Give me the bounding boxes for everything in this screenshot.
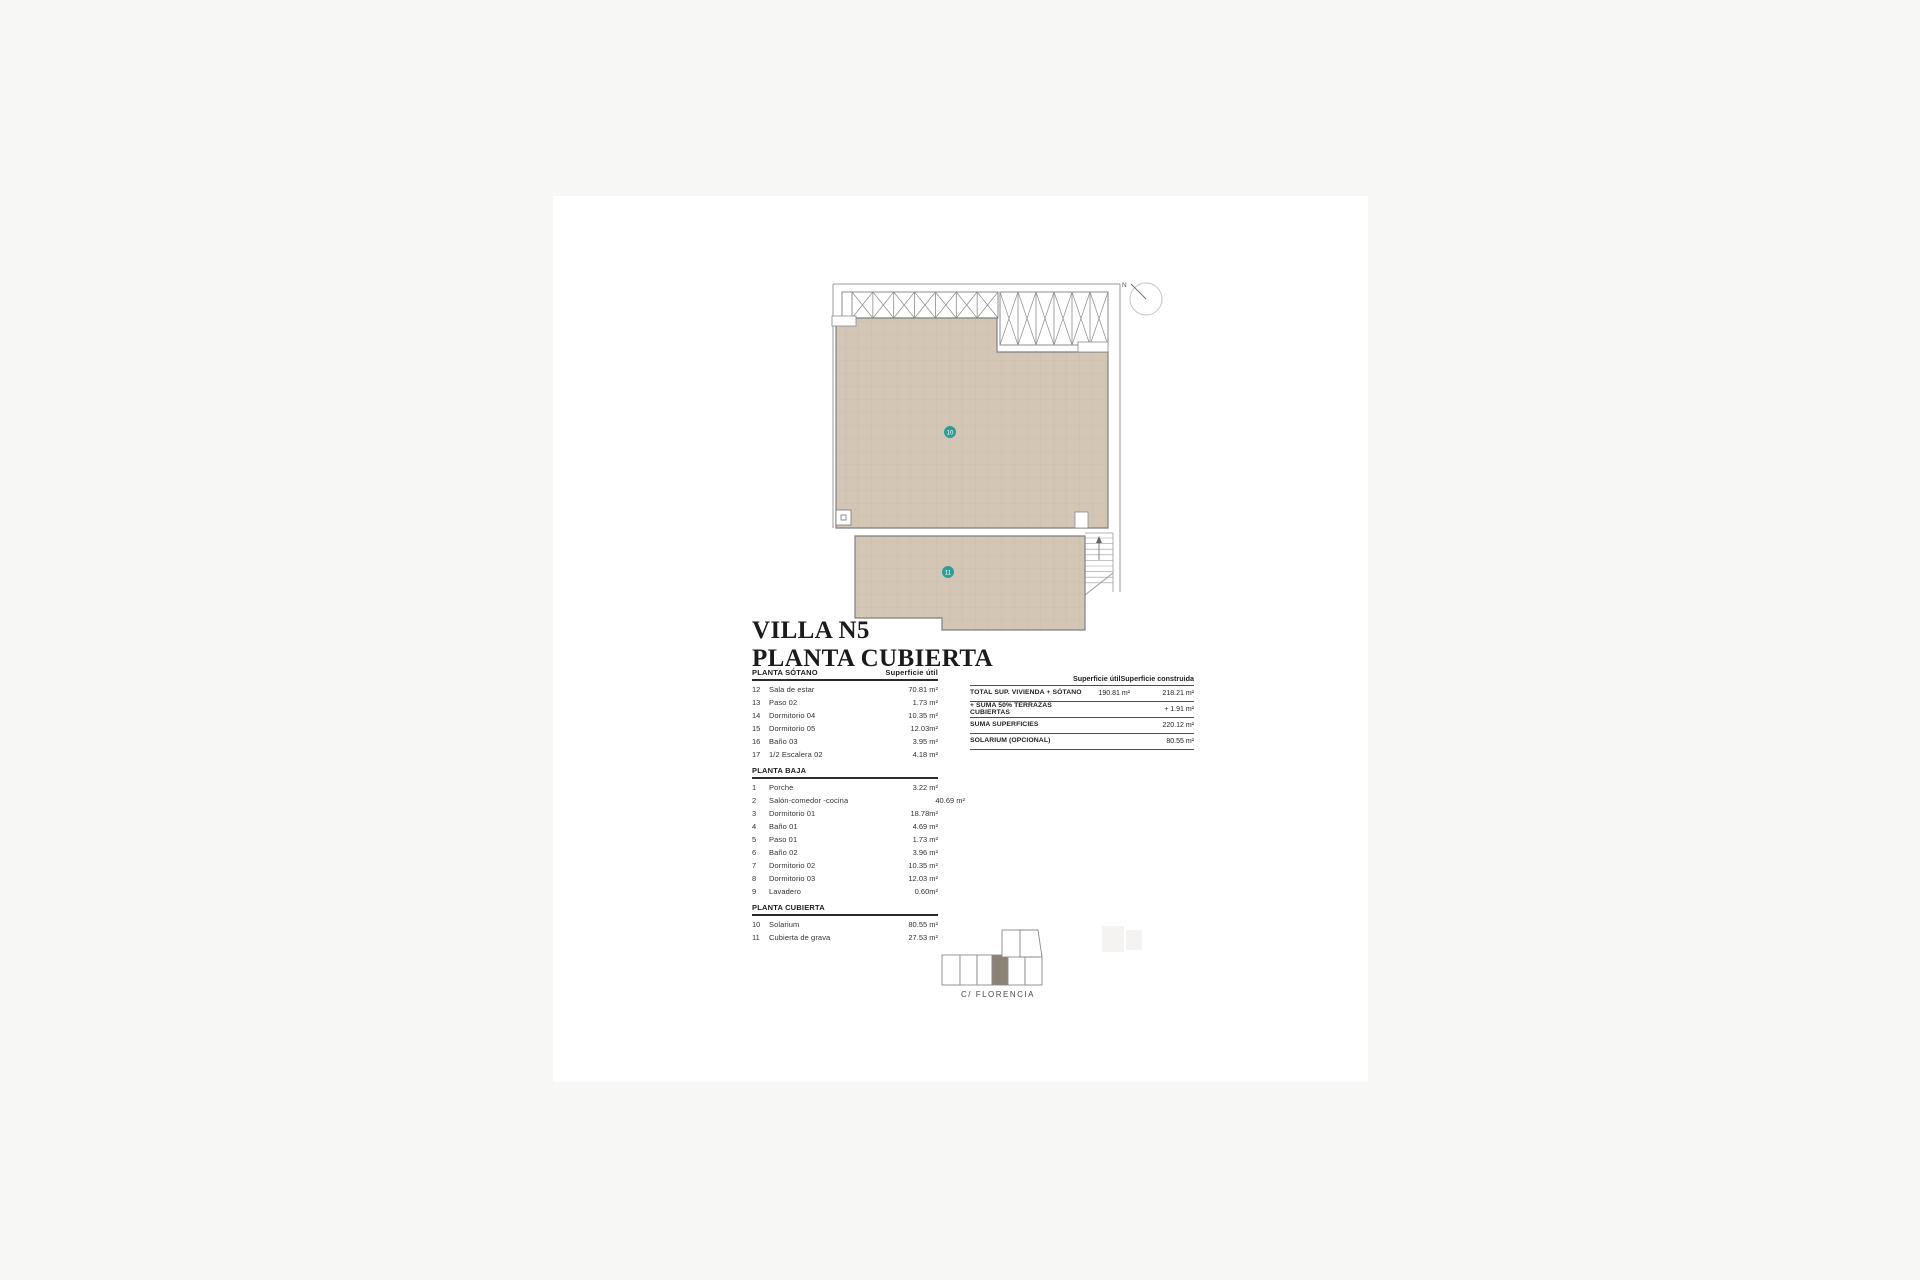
room-number: 12 — [752, 686, 769, 694]
room-number: 11 — [752, 934, 769, 942]
solarium-roof-area — [836, 318, 1108, 528]
svg-text:10: 10 — [947, 431, 954, 437]
area-row: 12Sala de estar70.81 m² — [752, 683, 938, 696]
area-row: 171/2 Escalera 024.18 m² — [752, 748, 938, 761]
room-number: 13 — [752, 699, 769, 707]
room-area-value: 0.60m² — [915, 888, 938, 896]
room-name: Lavadero — [769, 888, 915, 896]
room-name: 1/2 Escalera 02 — [769, 751, 913, 759]
room-number: 7 — [752, 862, 769, 870]
svg-text:11: 11 — [945, 571, 952, 577]
summary-row: SOLARIUM (OPCIONAL)80.55 m² — [970, 733, 1194, 750]
pergola-band-left — [842, 292, 998, 318]
parapet-notch-left — [832, 316, 856, 326]
room-name: Paso 02 — [769, 699, 913, 707]
room-marker-11: 11 — [942, 566, 954, 578]
street-label: C/ FLORENCIA — [961, 990, 1035, 999]
area-row: 13Paso 021.73 m² — [752, 696, 938, 709]
summary-construida-value: 80.55 m² — [1130, 738, 1194, 745]
area-row: 7Dormitorio 0210.35 m² — [752, 859, 938, 872]
room-number: 16 — [752, 738, 769, 746]
summary-construida-value: 218.21 m² — [1130, 690, 1194, 697]
north-compass-icon: N — [1122, 282, 1162, 315]
section-header: PLANTA BAJA — [752, 767, 938, 779]
roof-drain-box — [836, 510, 851, 525]
summary-label: SUMA SUPERFICIES — [970, 722, 1082, 729]
neighbor-buildings-faint — [1102, 926, 1142, 952]
room-number: 10 — [752, 921, 769, 929]
section-title: PLANTA SÓTANO — [752, 669, 818, 677]
room-name: Dormitorio 04 — [769, 712, 908, 720]
room-area-value: 3.96 m² — [913, 849, 938, 857]
summary-construida-value: + 1.91 m² — [1130, 706, 1194, 713]
svg-text:N: N — [1122, 282, 1127, 289]
section-title: PLANTA BAJA — [752, 767, 806, 775]
summary-col1-header: Superficie útil — [1073, 675, 1121, 682]
area-row: 10Solarium80.55 m² — [752, 918, 938, 931]
plan-sheet-page: 10 11 N VILLA N5 PLANTA CUBIERTA PLANTA … — [0, 0, 1920, 1280]
area-row: 9Lavadero0.60m² — [752, 885, 938, 898]
room-area-value: 10.35 m² — [908, 862, 938, 870]
room-number: 15 — [752, 725, 769, 733]
room-area-value: 3.95 m² — [913, 738, 938, 746]
area-row: 3Dormitorio 0118.78m² — [752, 807, 938, 820]
areas-col-header: Superficie útil — [885, 669, 938, 677]
area-row: 15Dormitorio 0512.03m² — [752, 722, 938, 735]
room-name: Baño 02 — [769, 849, 913, 857]
summary-row: TOTAL SUP. VIVIENDA + SÓTANO190.81 m²218… — [970, 685, 1194, 701]
room-name: Paso 01 — [769, 836, 913, 844]
parapet-step-right — [1078, 342, 1108, 352]
room-name: Solarium — [769, 921, 908, 929]
room-name: Salón-comedor -cocina — [769, 797, 935, 805]
summary-construida-value: 220.12 m² — [1130, 722, 1194, 729]
room-area-value: 12.03 m² — [908, 875, 938, 883]
area-row: 14Dormitorio 0410.35 m² — [752, 709, 938, 722]
summary-row: + SUMA 50% TERRAZAS CUBIERTAS+ 1.91 m² — [970, 701, 1194, 717]
site-plan-svg: C/ FLORENCIA — [930, 918, 1160, 1008]
plot-row-upper — [1002, 930, 1042, 957]
room-area-value: 3.22 m² — [913, 784, 938, 792]
floor-plan-svg: 10 11 N — [820, 270, 1180, 650]
room-number: 17 — [752, 751, 769, 759]
room-area-value: 4.69 m² — [913, 823, 938, 831]
room-area-value: 1.73 m² — [913, 836, 938, 844]
room-name: Porche — [769, 784, 913, 792]
page-title-line1: VILLA N5 — [752, 617, 993, 645]
room-number: 2 — [752, 797, 769, 805]
room-number: 3 — [752, 810, 769, 818]
area-row: 4Baño 014.69 m² — [752, 820, 938, 833]
stair-opening — [1075, 512, 1088, 528]
room-name: Dormitorio 02 — [769, 862, 908, 870]
area-row: 11Cubierta de grava27.53 m² — [752, 931, 938, 944]
summary-col2-header: Superficie construida — [1121, 675, 1195, 682]
area-row: 5Paso 011.73 m² — [752, 833, 938, 846]
room-number: 4 — [752, 823, 769, 831]
room-number: 8 — [752, 875, 769, 883]
summary-table-header: Superficie útil Superficie construida — [970, 669, 1194, 685]
area-row: 1Porche3.22 m² — [752, 781, 938, 794]
section-header: PLANTA CUBIERTA — [752, 904, 938, 916]
summary-label: + SUMA 50% TERRAZAS CUBIERTAS — [970, 703, 1082, 717]
section-header: PLANTA SÓTANOSuperficie útil — [752, 669, 938, 681]
summary-row: SUMA SUPERFICIES220.12 m² — [970, 717, 1194, 733]
stair-direction-arrow — [1096, 536, 1102, 560]
room-area-value: 70.81 m² — [908, 686, 938, 694]
areas-table: PLANTA SÓTANOSuperficie útil12Sala de es… — [752, 669, 938, 944]
room-area-value: 1.73 m² — [913, 699, 938, 707]
room-area-value: 4.18 m² — [913, 751, 938, 759]
room-number: 1 — [752, 784, 769, 792]
room-number: 14 — [752, 712, 769, 720]
summary-table: Superficie útil Superficie construida TO… — [970, 669, 1194, 750]
room-name: Dormitorio 03 — [769, 875, 908, 883]
summary-label: SOLARIUM (OPCIONAL) — [970, 738, 1082, 745]
section-title: PLANTA CUBIERTA — [752, 904, 825, 912]
room-name: Baño 03 — [769, 738, 913, 746]
area-row: 16Baño 033.95 m² — [752, 735, 938, 748]
room-number: 5 — [752, 836, 769, 844]
room-area-value: 10.35 m² — [908, 712, 938, 720]
room-marker-10: 10 — [944, 426, 956, 438]
highlighted-plot — [992, 955, 1008, 985]
area-row: 2Salón-comedor -cocina40.69 m² — [752, 794, 938, 807]
summary-label: TOTAL SUP. VIVIENDA + SÓTANO — [970, 690, 1082, 697]
room-area-value: 40.69 m² — [935, 797, 965, 805]
summary-rows: TOTAL SUP. VIVIENDA + SÓTANO190.81 m²218… — [970, 685, 1194, 750]
room-area-value: 12.03m² — [910, 725, 938, 733]
room-name: Dormitorio 01 — [769, 810, 910, 818]
room-area-value: 18.78m² — [910, 810, 938, 818]
room-number: 9 — [752, 888, 769, 896]
room-name: Dormitorio 05 — [769, 725, 910, 733]
area-row: 6Baño 023.96 m² — [752, 846, 938, 859]
page-title: VILLA N5 PLANTA CUBIERTA — [752, 617, 993, 673]
summary-util-value: 190.81 m² — [1082, 690, 1130, 697]
plot-row — [942, 955, 1042, 985]
room-name: Cubierta de grava — [769, 934, 908, 942]
room-name: Baño 01 — [769, 823, 913, 831]
room-name: Sala de estar — [769, 686, 908, 694]
gravel-roof-area — [855, 536, 1085, 630]
area-row: 8Dormitorio 0312.03 m² — [752, 872, 938, 885]
room-number: 6 — [752, 849, 769, 857]
